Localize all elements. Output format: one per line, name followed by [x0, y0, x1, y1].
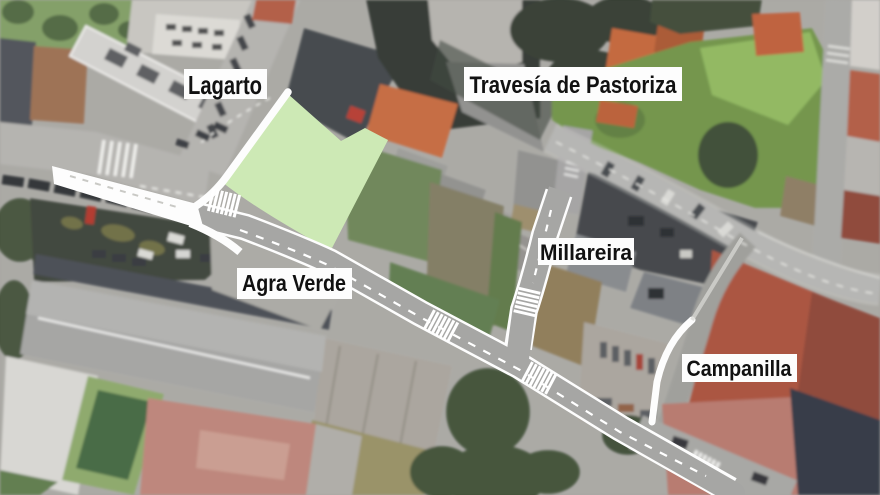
svg-text:Campanilla: Campanilla	[687, 356, 793, 381]
svg-text:Millareira: Millareira	[540, 240, 633, 265]
svg-text:Agra Verde: Agra Verde	[242, 270, 346, 296]
svg-text:Lagarto: Lagarto	[188, 70, 262, 100]
svg-text:Travesía de Pastoriza: Travesía de Pastoriza	[470, 72, 678, 99]
